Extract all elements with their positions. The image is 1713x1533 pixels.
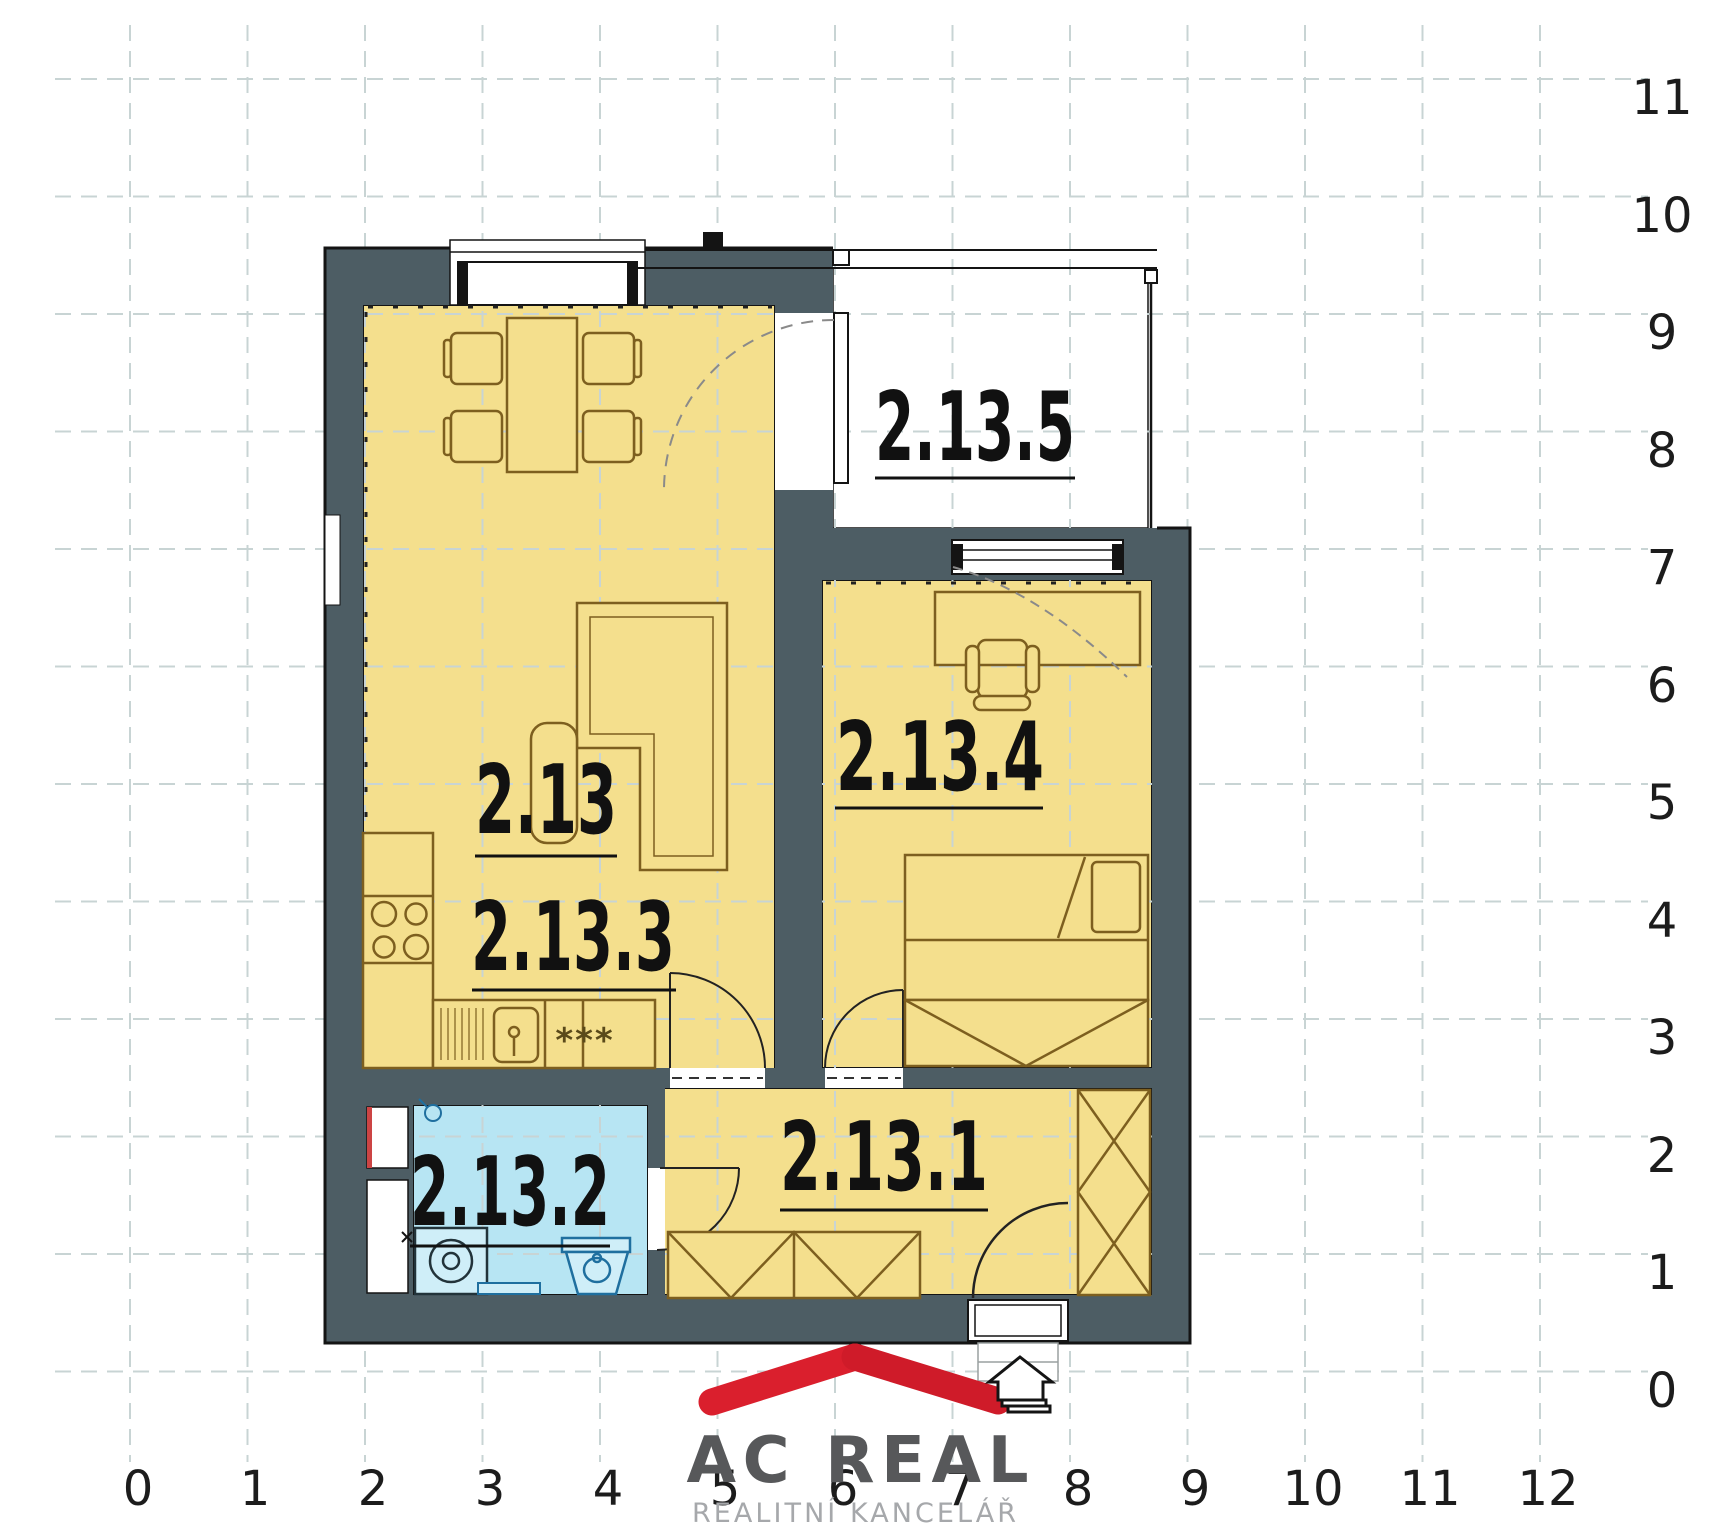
room-label-bedroom: 2.13.4 xyxy=(836,703,1044,813)
room-label-balcony: 2.13.5 xyxy=(875,373,1075,483)
axis-label: 3 xyxy=(1647,1010,1678,1066)
dishwasher-symbol: *** xyxy=(555,1021,614,1061)
axis-label: 9 xyxy=(1647,305,1678,361)
axis-label: 10 xyxy=(1631,188,1692,244)
axis-label: 12 xyxy=(1517,1461,1578,1517)
axis-label: 7 xyxy=(1647,540,1678,596)
chimney-marker-icon xyxy=(703,232,723,250)
room-label-kitchen: 2.13.3 xyxy=(471,883,675,993)
axis-label: 1 xyxy=(1647,1245,1678,1301)
bath-shelf xyxy=(478,1283,540,1294)
brand-tagline: REALITNÍ KANCELÁŘ xyxy=(692,1497,1022,1529)
floor-plan-page: 0 1 2 3 4 5 6 7 8 9 10 11 12 0 1 2 3 4 5… xyxy=(0,0,1713,1533)
balcony-door-opening xyxy=(775,313,833,490)
living-room-window xyxy=(450,240,645,305)
dining-table xyxy=(507,318,577,472)
wall-living-bathroom xyxy=(363,1068,665,1105)
logo-roof-left-icon xyxy=(712,1357,855,1402)
bathroom-door-opening xyxy=(648,1168,665,1250)
room-label-hallway: 2.13.1 xyxy=(780,1103,988,1213)
floor-plan-canvas: 0 1 2 3 4 5 6 7 8 9 10 11 12 0 1 2 3 4 5… xyxy=(0,0,1713,1533)
axis-label: 0 xyxy=(123,1461,154,1517)
axis-label: 4 xyxy=(593,1461,624,1517)
axis-label: 10 xyxy=(1282,1461,1343,1517)
axis-label: 1 xyxy=(240,1461,271,1517)
axis-label: 2 xyxy=(358,1461,389,1517)
chair-icon xyxy=(451,411,502,462)
wall-bedroom-left xyxy=(775,528,822,1088)
logo-roof-right-icon xyxy=(855,1357,998,1401)
tall-wardrobe xyxy=(1078,1090,1150,1295)
chair-icon xyxy=(451,333,502,384)
axis-label: 8 xyxy=(1063,1461,1094,1517)
axis-right: 0 1 2 3 4 5 6 7 8 9 10 11 xyxy=(1631,70,1692,1419)
brand-logo: AC REAL REALITNÍ KANCELÁŘ xyxy=(687,1357,1053,1529)
axis-label: 11 xyxy=(1631,70,1692,126)
axis-label: 4 xyxy=(1647,893,1678,949)
wall-niche xyxy=(325,515,340,605)
shaft-marker xyxy=(367,1107,372,1168)
wall-left xyxy=(325,248,363,1343)
room-label-bathroom: 2.13.2 xyxy=(410,1138,610,1248)
double-bed xyxy=(905,855,1148,1000)
bedroom-window xyxy=(952,540,1123,574)
chair-icon xyxy=(583,333,634,384)
axis-label: 5 xyxy=(1647,775,1678,831)
hall-wardrobe xyxy=(668,1232,920,1298)
living-hall-door-opening xyxy=(670,1068,765,1088)
installation-shaft-lower xyxy=(367,1180,408,1293)
axis-label: 0 xyxy=(1647,1363,1678,1419)
brand-name: AC REAL xyxy=(687,1424,1032,1498)
axis-label: 11 xyxy=(1399,1461,1460,1517)
axis-label: 6 xyxy=(1647,658,1678,714)
bedroom-wardrobe xyxy=(905,1000,1148,1066)
axis-label: 3 xyxy=(475,1461,506,1517)
axis-label: 2 xyxy=(1647,1128,1678,1184)
installation-shaft-upper xyxy=(367,1107,408,1168)
chair-icon xyxy=(583,411,634,462)
axis-label: 9 xyxy=(1180,1461,1211,1517)
room-label-living: 2.13 xyxy=(475,746,617,856)
wall-living-balcony xyxy=(775,248,833,313)
axis-label: 8 xyxy=(1647,423,1678,479)
wall-right xyxy=(1152,528,1190,1343)
